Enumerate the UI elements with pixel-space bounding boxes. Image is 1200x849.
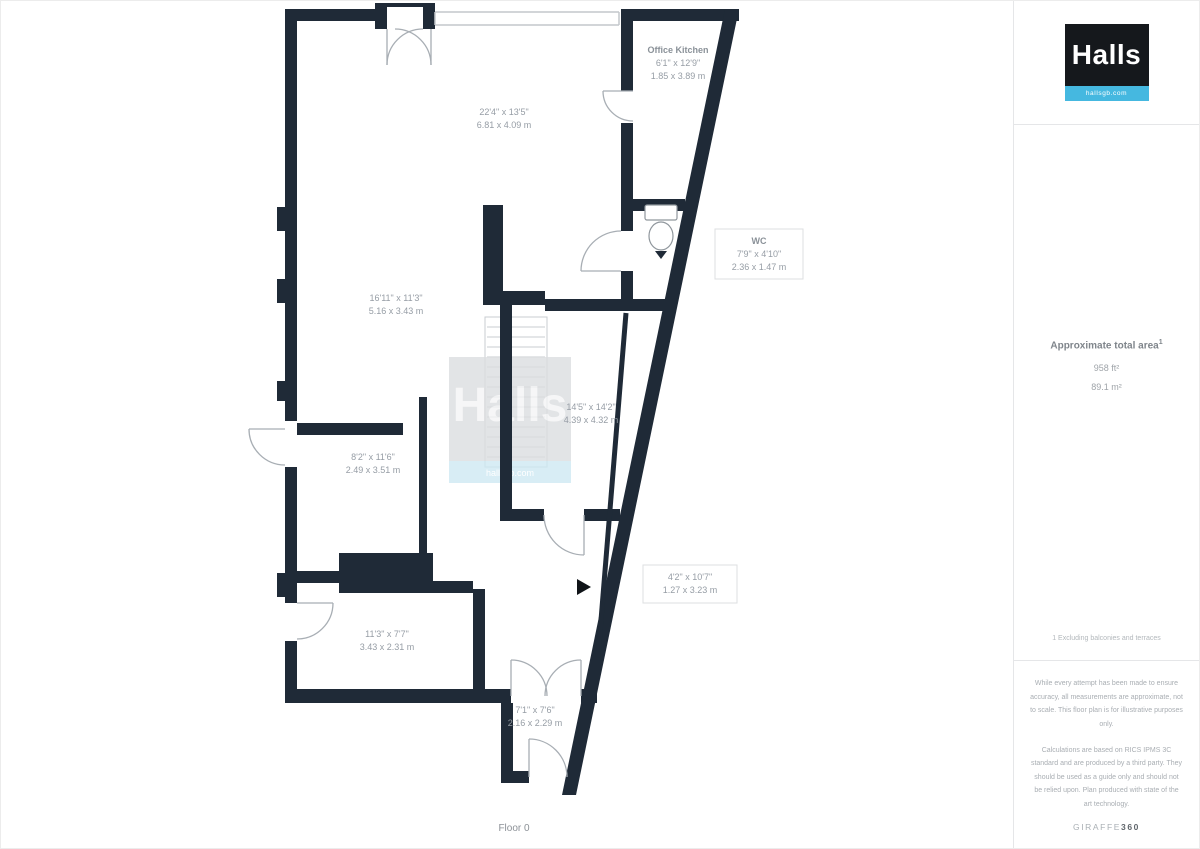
room-wc-imperial: 7'9" x 4'10" [737, 249, 781, 259]
room-left-imperial: 16'11" x 11'3" [369, 293, 422, 303]
stair-spine-wall [500, 305, 512, 521]
room-office-kitchen-metric: 1.85 x 3.89 m [651, 71, 706, 81]
room-stairwell-metric: 4.39 x 4.32 m [564, 415, 619, 425]
entrance-arrow-icon [577, 579, 591, 595]
area-value-ft: 958 ft² [1014, 363, 1199, 373]
room-office-kitchen-name: Office Kitchen [647, 45, 708, 55]
disclaimer-section: While every attempt has been made to ens… [1014, 660, 1199, 848]
area-title-text: Approximate total area [1050, 340, 1158, 351]
boxed-labels: WC 7'9" x 4'10" 2.36 x 1.47 m 4'2" x 10'… [643, 229, 803, 603]
room-wc-name: WC [752, 236, 767, 246]
floor-label: Floor 0 [498, 823, 530, 834]
giraffe360-logo-bold: 360 [1121, 822, 1140, 832]
area-title-sup: 1 [1159, 339, 1163, 346]
logo-section: Halls hallsgb.com [1014, 1, 1199, 125]
top-door-recess [387, 7, 423, 29]
room-corridor-metric: 1.27 x 3.23 m [663, 585, 718, 595]
area-title: Approximate total area1 [1014, 339, 1199, 351]
area-section: Approximate total area1 958 ft² 89.1 m² … [1014, 125, 1199, 660]
room-bottom-left-imperial: 11'3" x 7'7" [365, 629, 409, 639]
area-value-m: 89.1 m² [1014, 382, 1199, 392]
giraffe360-logo: GIRAFFE360 [1014, 822, 1199, 832]
window-lines [435, 12, 619, 25]
disclaimer-paragraph-1: While every attempt has been made to ens… [1030, 677, 1183, 732]
area-footnote: 1 Excluding balconies and terraces [1014, 635, 1199, 642]
room-lobby-imperial: 7'1" x 7'6" [515, 705, 554, 715]
halls-logo: Halls hallsgb.com [1065, 24, 1149, 101]
disclaimer-paragraph-2: Calculations are based on RICS IPMS 3C s… [1030, 744, 1183, 812]
room-corridor-imperial: 4'2" x 10'7" [668, 572, 712, 582]
floorplan-page: Halls hallsgb.com [0, 0, 1200, 849]
halls-logo-tagline: hallsgb.com [1065, 86, 1149, 101]
room-office-kitchen-imperial: 6'1" x 12'9" [656, 58, 700, 68]
room-mid-left-imperial: 8'2" x 11'6" [351, 452, 395, 462]
toilet-icon [645, 205, 677, 259]
room-top-middle-metric: 6.81 x 4.09 m [477, 120, 532, 130]
room-bottom-left-metric: 3.43 x 2.31 m [360, 642, 415, 652]
room-stairwell-imperial: 14'5" x 14'2" [566, 402, 615, 412]
corridor-label-box [643, 565, 737, 603]
floor-plan: Halls hallsgb.com [1, 1, 1014, 849]
room-wc-metric: 2.36 x 1.47 m [732, 262, 787, 272]
room-left-metric: 5.16 x 3.43 m [369, 306, 424, 316]
giraffe360-logo-light: GIRAFFE [1073, 822, 1121, 832]
floorplan-canvas: Halls hallsgb.com [1, 1, 1013, 848]
room-mid-left-metric: 2.49 x 3.51 m [346, 465, 401, 475]
room-lobby-metric: 2.16 x 2.29 m [508, 718, 563, 728]
halls-logo-text: Halls [1065, 24, 1149, 86]
room-top-middle-imperial: 22'4" x 13'5" [479, 107, 528, 117]
info-sidebar: Halls hallsgb.com Approximate total area… [1013, 1, 1199, 848]
